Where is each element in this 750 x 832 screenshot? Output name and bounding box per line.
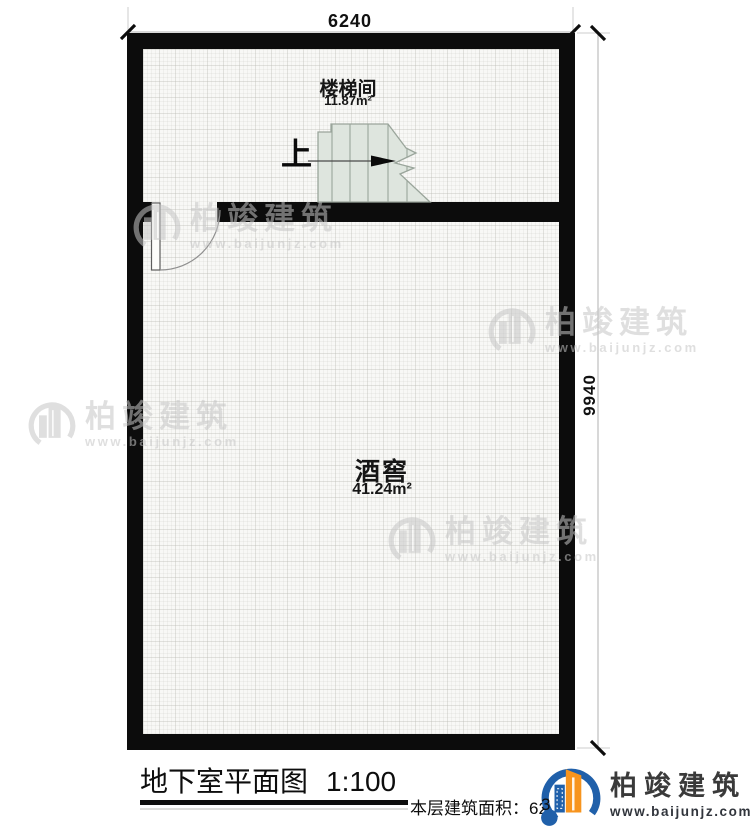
watermark-name: 柏竣建筑 [190,203,344,234]
watermark-name: 柏竣建筑 [545,307,699,338]
plan-title: 地下室平面图1:100 [140,760,396,800]
watermark: 柏竣建筑 www.baijunjz.com [26,398,239,450]
stair-up-label: 上 [281,139,312,170]
watermark-name: 柏竣建筑 [445,516,599,547]
building-logo-icon [386,513,438,565]
title-underline-shadow [140,808,408,810]
plan-title-text: 地下室平面图 [140,766,308,797]
room-area-stairwell: 11.87m² [288,93,408,108]
plan-scale: 1:100 [326,766,396,797]
dimension-label-right: 9940 [580,372,598,418]
watermark-name: 柏竣建筑 [85,401,239,432]
building-logo-icon [486,304,538,356]
building-logo-icon [131,200,183,252]
watermark-url: www.baijunjz.com [190,237,344,250]
floorplan-canvas: 6240 9940 楼梯间 11.87m² 酒窖 41.24m² 上 柏竣建筑 … [0,0,750,832]
watermark: 柏竣建筑 www.baijunjz.com [386,513,599,565]
watermark: 柏竣建筑 www.baijunjz.com [486,304,699,356]
floor-texture [143,49,559,734]
watermark-url: www.baijunjz.com [85,435,239,448]
logo-url: www.baijunjz.com [610,805,750,819]
company-logo: 柏竣建筑 www.baijunjz.com [538,763,750,829]
floor-area-note: 本层建筑面积：62. [410,794,553,819]
room-area-wine-cellar: 41.24m² [312,481,452,499]
watermark-url: www.baijunjz.com [445,550,599,563]
title-underline [140,800,408,805]
dimension-label-top: 6240 [240,11,460,32]
floor-area-partial-digit: 3 [541,795,550,815]
watermark: 柏竣建筑 www.baijunjz.com [131,200,344,252]
logo-name: 柏竣建筑 [610,773,750,800]
building-logo-icon [26,398,78,450]
floor-area-label: 本层建筑面积： [410,799,529,818]
watermark-url: www.baijunjz.com [545,341,699,354]
